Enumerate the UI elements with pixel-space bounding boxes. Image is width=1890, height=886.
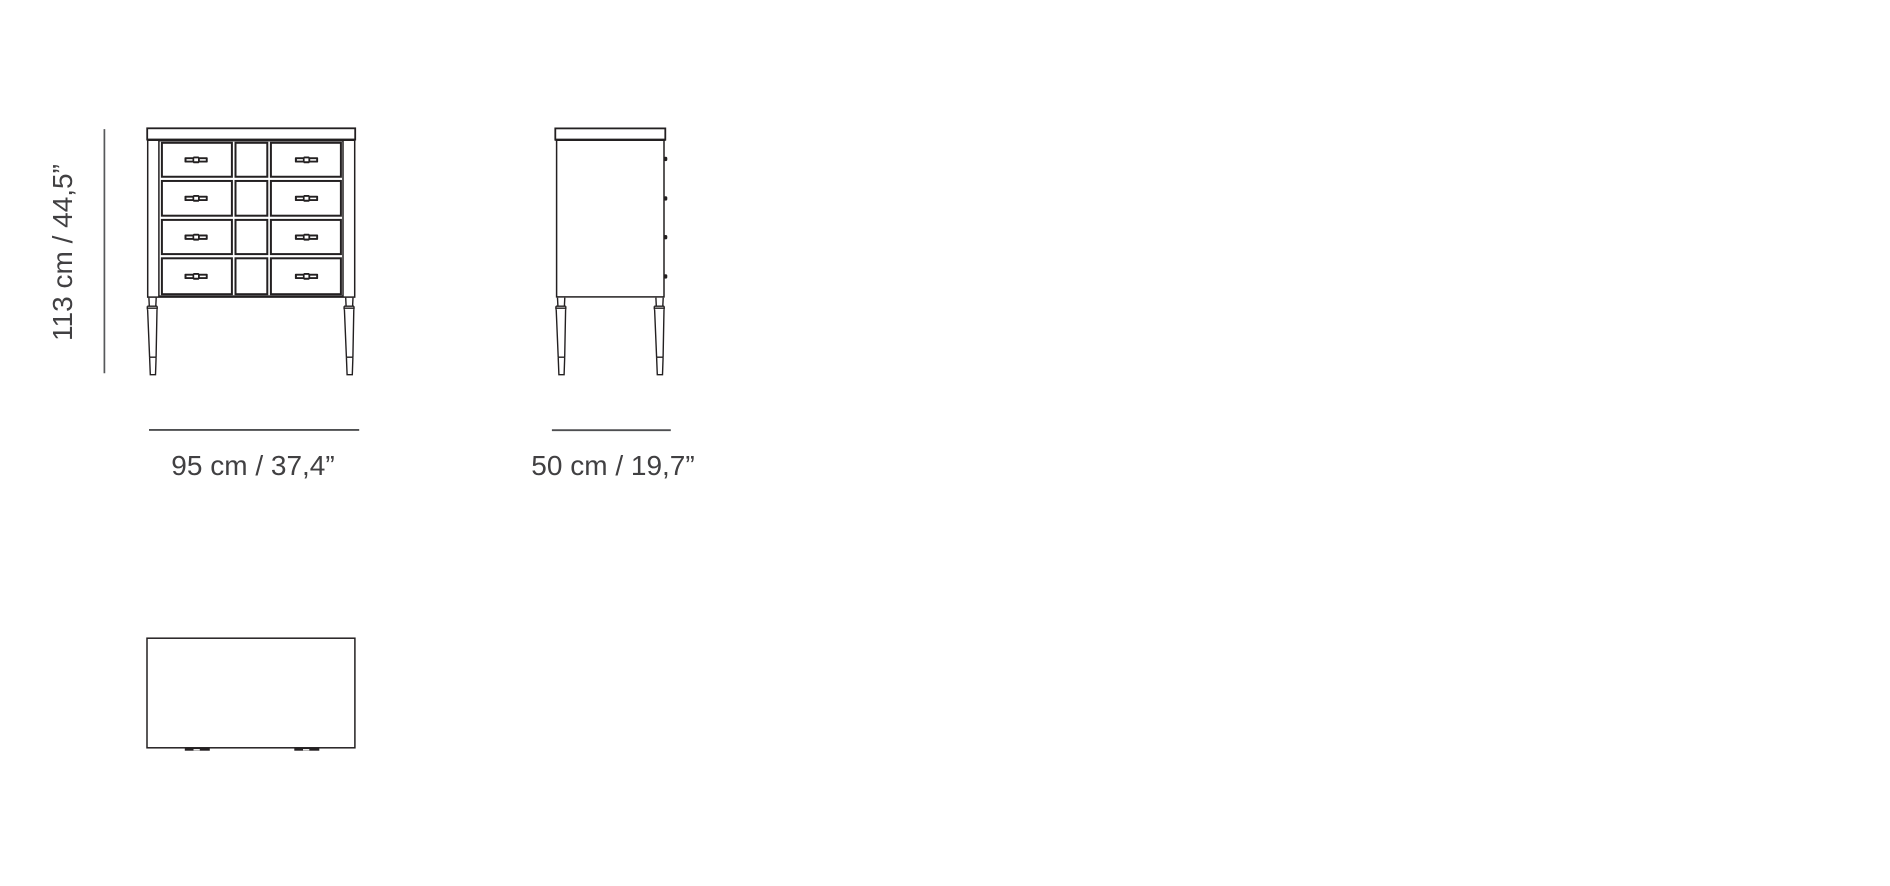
svg-text:50 cm / 19,7”: 50 cm / 19,7” [531,450,694,481]
svg-text:113 cm / 44,5”: 113 cm / 44,5” [47,164,78,341]
svg-text:95 cm / 37,4”: 95 cm / 37,4” [171,450,334,481]
